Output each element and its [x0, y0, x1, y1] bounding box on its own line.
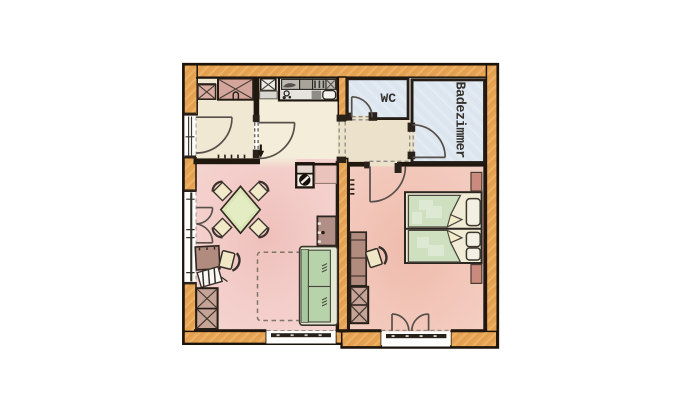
- svg-text:WC: WC: [381, 91, 397, 106]
- svg-text:Badezimmer: Badezimmer: [452, 82, 467, 159]
